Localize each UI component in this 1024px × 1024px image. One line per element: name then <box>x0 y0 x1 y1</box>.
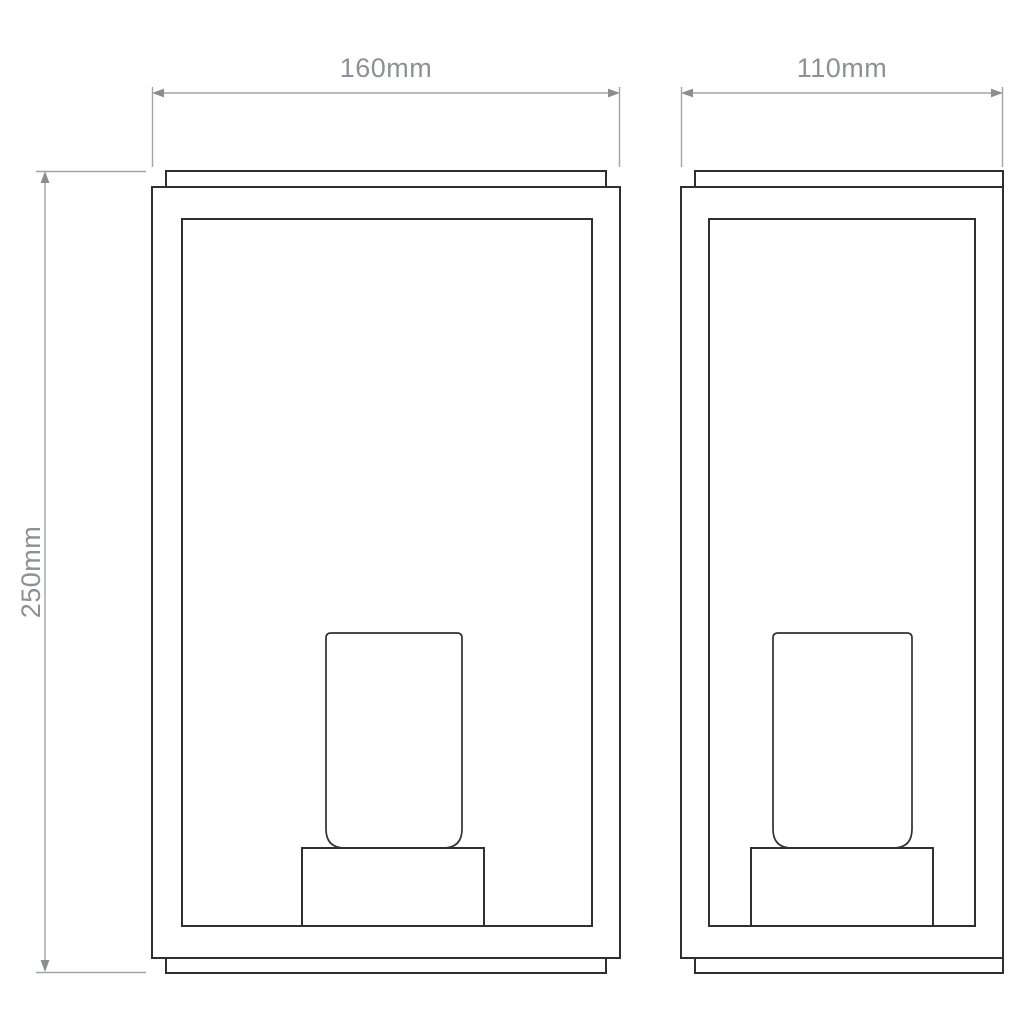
front-width-arrow-right-icon <box>608 89 620 98</box>
dimension-front-width: 160mm <box>152 53 620 167</box>
front-view <box>152 171 620 973</box>
height-arrow-down-icon <box>41 960 50 972</box>
height-label: 250mm <box>16 526 46 619</box>
technical-drawing-page: 160mm 110mm 250mm <box>0 0 1024 1024</box>
front-width-label: 160mm <box>340 53 433 83</box>
side-top-cap <box>695 171 1003 188</box>
wall-light-technical-drawing: 160mm 110mm 250mm <box>0 0 1024 1024</box>
dimension-side-width: 110mm <box>681 53 1003 167</box>
front-lamp-glass <box>326 633 462 848</box>
side-lamp-glass <box>773 633 912 848</box>
side-width-arrow-left-icon <box>681 89 693 98</box>
side-bottom-cap <box>695 957 1003 973</box>
front-width-arrow-left-icon <box>152 89 164 98</box>
side-view <box>681 171 1003 973</box>
side-width-arrow-right-icon <box>991 89 1003 98</box>
side-lamp-holder <box>751 848 933 926</box>
front-lamp-holder <box>302 848 484 926</box>
front-bottom-cap <box>166 957 606 973</box>
dimension-height: 250mm <box>16 171 146 973</box>
side-width-label: 110mm <box>797 53 888 83</box>
height-arrow-up-icon <box>41 171 50 183</box>
front-top-cap <box>166 171 606 188</box>
